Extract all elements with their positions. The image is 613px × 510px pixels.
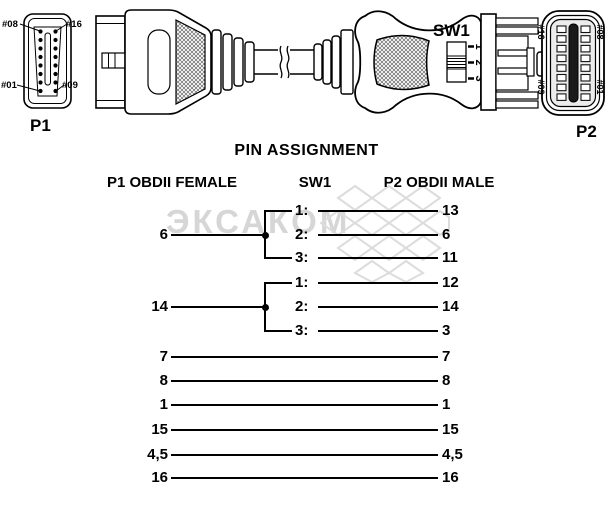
wire-line	[318, 282, 438, 284]
wire-line	[171, 429, 438, 431]
wire-line	[171, 356, 438, 358]
p1-pin-label: 6	[110, 226, 168, 244]
p1-pin-label: 8	[110, 372, 168, 390]
cable-middle	[212, 30, 353, 94]
wire-stub	[264, 282, 292, 284]
p2-pin-label: 3	[442, 322, 450, 340]
wire-line	[318, 234, 438, 236]
p1-grip-hatch	[176, 20, 205, 104]
p2-pin-label: 7	[442, 348, 450, 366]
column-header-p1: P1 OBDII FEMALE	[94, 174, 250, 191]
sw1-grip-hatch	[374, 36, 429, 90]
wire-stub	[264, 210, 292, 212]
wire-line	[318, 257, 438, 259]
p1-pin-label: 1	[110, 396, 168, 414]
p2-pin-label: 13	[442, 202, 459, 220]
wire-stub	[264, 257, 292, 259]
p2-pin-label: 12	[442, 274, 459, 292]
wire-branch-line	[264, 210, 266, 259]
p1-pin-label-top-right: #16	[66, 19, 82, 30]
p2-pin-label: 14	[442, 298, 459, 316]
cable-illustration: #08 #16 #01 #09 P1	[0, 0, 613, 140]
sw1-slider[interactable]	[447, 56, 466, 69]
wire-stub	[264, 330, 292, 332]
wire-line	[171, 454, 438, 456]
p2-pin-label: 8	[442, 372, 450, 390]
p1-pin-label-bottom-right: #09	[62, 80, 78, 91]
p1-side-view	[96, 10, 211, 114]
wire-line	[171, 404, 438, 406]
column-header-sw1: SW1	[289, 174, 341, 191]
wire-line	[171, 477, 438, 479]
sw1-housing: SW1 1 2 3	[355, 11, 485, 112]
p2-pin-label: 4,5	[442, 446, 463, 464]
p2-pin-label: 11	[442, 249, 458, 267]
pin-assignment-title: PIN ASSIGNMENT	[0, 142, 613, 160]
wire-line	[171, 234, 265, 236]
p2-connector-face: #16 #08 #09 #01 P2	[536, 11, 605, 140]
p2-pin-label-top-right: #08	[595, 24, 605, 39]
wire-line	[318, 210, 438, 212]
cable-break-mark	[280, 46, 282, 78]
p2-label: P2	[576, 122, 597, 140]
p2-pin-label: 6	[442, 226, 450, 244]
wire-line	[318, 330, 438, 332]
p1-pin-label-bottom-left: #01	[1, 80, 18, 91]
p2-pin-label: 15	[442, 421, 459, 439]
p2-pin-label: 1	[442, 396, 450, 414]
wire-line	[171, 380, 438, 382]
p1-pin-label: 14	[110, 298, 168, 316]
wire-line	[171, 306, 265, 308]
p1-pin-label: 7	[110, 348, 168, 366]
sw1-housing-label: SW1	[433, 21, 470, 40]
wire-line	[318, 306, 438, 308]
p2-pin-label-bottom-left: #09	[536, 79, 546, 94]
p1-pin-label: 15	[110, 421, 168, 439]
p1-pin-label: 4,5	[110, 446, 168, 464]
p2-pin-label-top-left: #16	[536, 24, 546, 39]
p2-pin-label: 16	[442, 469, 459, 487]
sw1-switch[interactable]	[447, 42, 466, 82]
p2-pin-label-bottom-right: #01	[595, 79, 605, 94]
p1-pin-label: 16	[110, 469, 168, 487]
p1-pin-label-top-left: #08	[2, 19, 18, 30]
obdii-cable-diagram: #08 #16 #01 #09 P1	[0, 0, 613, 510]
wire-branch-line	[264, 282, 266, 331]
p2-side-view	[481, 14, 538, 110]
p1-connector-face: #08 #16 #01 #09 P1	[1, 14, 82, 135]
column-header-p2: P2 OBDII MALE	[372, 174, 506, 191]
p1-label: P1	[30, 116, 51, 135]
watermark-logo	[320, 183, 450, 283]
